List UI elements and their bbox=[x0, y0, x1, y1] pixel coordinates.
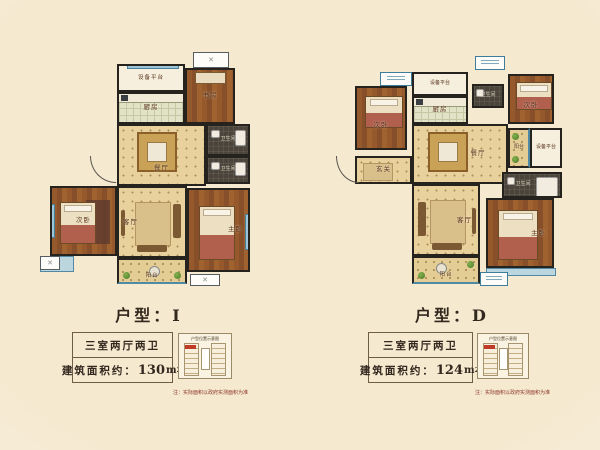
area-unit: m bbox=[464, 365, 475, 376]
room-kitchen: 厨房 bbox=[412, 96, 468, 124]
room-label: 餐厅 bbox=[154, 165, 169, 172]
room-equipment-platform-right: 设备平台 bbox=[530, 128, 562, 168]
bathtub bbox=[235, 130, 246, 146]
plan-d-info-box: 三室两厅两卫 建筑面积约：124m2 bbox=[368, 332, 473, 383]
room-bedroom-2: 次卧 bbox=[355, 86, 407, 150]
key-plan-units-right bbox=[508, 343, 523, 376]
window-box bbox=[480, 272, 508, 286]
room-label: 卫生间 bbox=[515, 182, 530, 188]
room-living: 客厅 bbox=[412, 184, 480, 256]
area-label: 建筑面积约： bbox=[62, 363, 137, 378]
layout-text: 三室两厅两卫 bbox=[73, 333, 172, 357]
plan-i-note: 注：实际面积以政府实测面积为准 bbox=[173, 389, 248, 396]
room-label: 主卧 bbox=[228, 226, 243, 233]
key-plan-core bbox=[499, 348, 508, 370]
plan-i-key-plan: 户型位置示意图 bbox=[178, 333, 232, 379]
plant bbox=[512, 133, 519, 140]
room-label: 厨房 bbox=[144, 104, 159, 111]
floor-plan-d: 次卧 设备平台 厨房 卫生间 次卧 阳台 设备平台 餐厅 玄关 客厅 bbox=[338, 44, 566, 292]
window bbox=[127, 64, 179, 69]
plant bbox=[512, 156, 519, 163]
room-label: 玄关 bbox=[376, 166, 391, 173]
room-bedroom-3: 次卧 bbox=[508, 74, 554, 124]
window-box bbox=[475, 56, 505, 70]
room-bathroom-1: 卫生间 bbox=[206, 124, 250, 156]
entry-door-arc bbox=[336, 156, 359, 183]
plan-d-key-plan: 户型位置示意图 bbox=[477, 333, 529, 379]
room-label: 客厅 bbox=[457, 217, 472, 224]
room-label: 次卧 bbox=[374, 122, 389, 129]
room-study: 书房 bbox=[185, 68, 235, 124]
room-label: 阳台 bbox=[514, 145, 524, 151]
kitchen-counter bbox=[119, 94, 183, 103]
room-master-bedroom: 主卧 bbox=[187, 188, 250, 272]
room-label: 餐厅 bbox=[471, 150, 486, 157]
area-unit: m bbox=[166, 365, 177, 376]
ac-box: ✕ bbox=[40, 256, 60, 270]
living-rug bbox=[135, 202, 171, 246]
key-plan-highlight bbox=[185, 345, 196, 349]
plan-i-title: 户型：I bbox=[38, 302, 260, 326]
room-label: 厨房 bbox=[433, 106, 448, 113]
room-equipment-platform: 设备平台 bbox=[412, 72, 468, 96]
room-dining: 餐厅 bbox=[412, 124, 508, 184]
toilet bbox=[211, 130, 220, 138]
key-plan-core bbox=[201, 348, 210, 370]
room-label: 设备平台 bbox=[138, 75, 164, 81]
plant bbox=[467, 261, 474, 268]
dining-table bbox=[428, 132, 468, 172]
room-balcony-right: 阳台 bbox=[508, 128, 530, 168]
plant bbox=[174, 272, 181, 279]
area-label: 建筑面积约： bbox=[360, 363, 435, 378]
bathtub bbox=[235, 162, 246, 176]
tv-cabinet bbox=[472, 208, 476, 234]
room-label: 阳台 bbox=[439, 272, 452, 278]
room-master-bedroom: 主卧 bbox=[486, 198, 554, 268]
room-dining: 餐厅 bbox=[117, 124, 206, 186]
bay-window-box: ✕ bbox=[193, 52, 229, 68]
room-label: 阳台 bbox=[145, 273, 158, 279]
room-bedroom-2: 次卧 bbox=[50, 186, 117, 256]
key-plan-title: 户型位置示意图 bbox=[181, 336, 229, 342]
plan-i-info-box: 三室两厅两卫 建筑面积约：130m2 bbox=[72, 332, 173, 383]
plan-d-note: 注：实际面积以政府实测面积为准 bbox=[475, 389, 550, 396]
window-box bbox=[380, 72, 412, 86]
key-plan-body bbox=[181, 343, 229, 376]
room-label: 设备平台 bbox=[430, 81, 450, 87]
toilet bbox=[507, 177, 515, 185]
room-balcony: 阳台 bbox=[117, 258, 187, 284]
room-label: 主卧 bbox=[531, 230, 546, 237]
entry-door-arc bbox=[90, 156, 116, 183]
toilet bbox=[211, 162, 220, 170]
plan-d-title: 户型：D bbox=[338, 302, 566, 326]
key-plan-units-right bbox=[211, 343, 226, 376]
area-text: 建筑面积约：124m2 bbox=[369, 357, 472, 382]
key-plan-highlight bbox=[484, 345, 495, 349]
desk bbox=[195, 72, 226, 84]
plant bbox=[418, 272, 425, 279]
ac-box: ✕ bbox=[190, 274, 220, 286]
room-balcony: 阳台 bbox=[412, 256, 480, 284]
key-plan-title: 户型位置示意图 bbox=[480, 336, 526, 342]
sofa bbox=[173, 204, 181, 238]
window bbox=[245, 214, 250, 250]
floor-plan-i: ✕ 设备平台 厨房 书房 卫生间 卫生间 餐厅 客厅 次卧 bbox=[38, 44, 260, 292]
room-label: 次卧 bbox=[76, 217, 91, 224]
sofa bbox=[418, 202, 426, 236]
room-bathroom-2: 卫生间 bbox=[206, 156, 250, 184]
room-living: 客厅 bbox=[117, 186, 187, 258]
layout-text: 三室两厅两卫 bbox=[369, 333, 472, 357]
room-entry-hall: 玄关 bbox=[355, 156, 412, 184]
room-label: 卫生间 bbox=[480, 93, 495, 99]
key-plan-body bbox=[480, 343, 526, 376]
bathtub bbox=[536, 177, 558, 197]
room-label: 书房 bbox=[203, 92, 218, 99]
room-equipment-platform: 设备平台 bbox=[117, 64, 185, 92]
room-label: 卫生间 bbox=[220, 137, 235, 143]
sofa bbox=[137, 245, 167, 252]
area-value: 130 bbox=[138, 363, 165, 378]
room-kitchen: 厨房 bbox=[117, 92, 185, 124]
room-label: 设备平台 bbox=[536, 145, 556, 151]
area-text: 建筑面积约：130m2 bbox=[73, 357, 172, 382]
room-label: 次卧 bbox=[524, 102, 539, 109]
area-value: 124 bbox=[436, 363, 463, 378]
room-label: 客厅 bbox=[123, 219, 138, 226]
stove bbox=[416, 99, 423, 105]
room-bathroom-top: 卫生间 bbox=[472, 84, 504, 108]
sofa bbox=[432, 243, 462, 250]
room-master-bathroom: 卫生间 bbox=[502, 172, 562, 198]
plant bbox=[123, 272, 130, 279]
room-label: 卫生间 bbox=[220, 167, 235, 173]
window bbox=[50, 204, 55, 238]
stove bbox=[121, 95, 128, 101]
